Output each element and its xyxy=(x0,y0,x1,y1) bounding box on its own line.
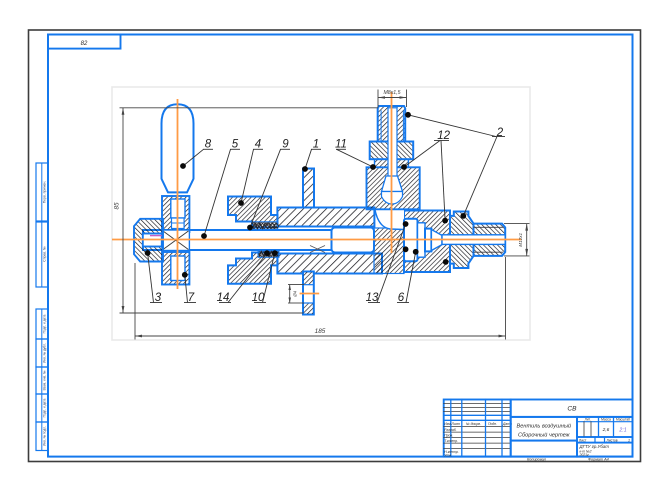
svg-text:9: 9 xyxy=(282,139,289,151)
svg-text:8: 8 xyxy=(205,139,212,151)
svg-text:11: 11 xyxy=(335,139,347,151)
svg-text:7: 7 xyxy=(188,292,195,304)
svg-text:СВ: СВ xyxy=(567,406,577,413)
svg-text:Формат А4: Формат А4 xyxy=(588,457,609,461)
svg-text:6: 6 xyxy=(398,292,405,304)
svg-text:Подп.: Подп. xyxy=(488,422,497,426)
svg-text:13: 13 xyxy=(366,292,379,304)
svg-text:2:1: 2:1 xyxy=(618,427,626,433)
svg-text:82: 82 xyxy=(81,41,88,47)
svg-text:Справ. №: Справ. № xyxy=(43,246,47,262)
svg-text:М8х1,5: М8х1,5 xyxy=(383,90,400,96)
svg-text:Пров.: Пров. xyxy=(444,433,453,437)
svg-text:1: 1 xyxy=(313,139,319,151)
svg-text:Копировал: Копировал xyxy=(527,457,547,461)
svg-text:Ø4: Ø4 xyxy=(293,290,298,297)
svg-text:Изм.Лист: Изм.Лист xyxy=(444,422,460,426)
svg-text:М12х1: М12х1 xyxy=(518,232,523,246)
svg-text:Вентиль воздушный: Вентиль воздушный xyxy=(517,422,572,429)
svg-text:Т.контр.: Т.контр. xyxy=(444,439,458,443)
svg-text:Инв. № подл.: Инв. № подл. xyxy=(43,426,47,446)
svg-text:Утв.: Утв. xyxy=(444,453,452,457)
svg-text:Сборочный чертеж: Сборочный чертеж xyxy=(518,431,571,438)
svg-text:Лит.: Лит. xyxy=(585,418,591,422)
svg-text:2: 2 xyxy=(496,127,504,139)
svg-text:ДГТУ гр.Убат: ДГТУ гр.Убат xyxy=(579,444,610,449)
svg-text:Подп. и дата: Подп. и дата xyxy=(43,314,47,333)
svg-text:№ докум.: № докум. xyxy=(466,422,481,426)
svg-text:12: 12 xyxy=(437,130,450,142)
svg-text:185: 185 xyxy=(315,328,326,335)
svg-text:Подп. и дата: Подп. и дата xyxy=(43,398,47,417)
svg-text:10: 10 xyxy=(252,292,265,304)
svg-text:14: 14 xyxy=(217,292,230,304)
svg-text:3: 3 xyxy=(155,292,162,304)
svg-text:Перв. примен.: Перв. примен. xyxy=(43,181,47,204)
svg-text:Разраб.: Разраб. xyxy=(444,428,456,432)
svg-text:5: 5 xyxy=(232,139,239,151)
svg-text:Масса: Масса xyxy=(601,418,611,422)
svg-text:Масштаб: Масштаб xyxy=(616,418,630,422)
svg-text:2,6: 2,6 xyxy=(602,427,610,433)
svg-text:4: 4 xyxy=(255,139,261,151)
svg-text:85: 85 xyxy=(114,202,121,210)
svg-text:Взам. инв. №: Взам. инв. № xyxy=(43,370,47,390)
svg-text:Инв. № дубл.: Инв. № дубл. xyxy=(43,343,47,363)
